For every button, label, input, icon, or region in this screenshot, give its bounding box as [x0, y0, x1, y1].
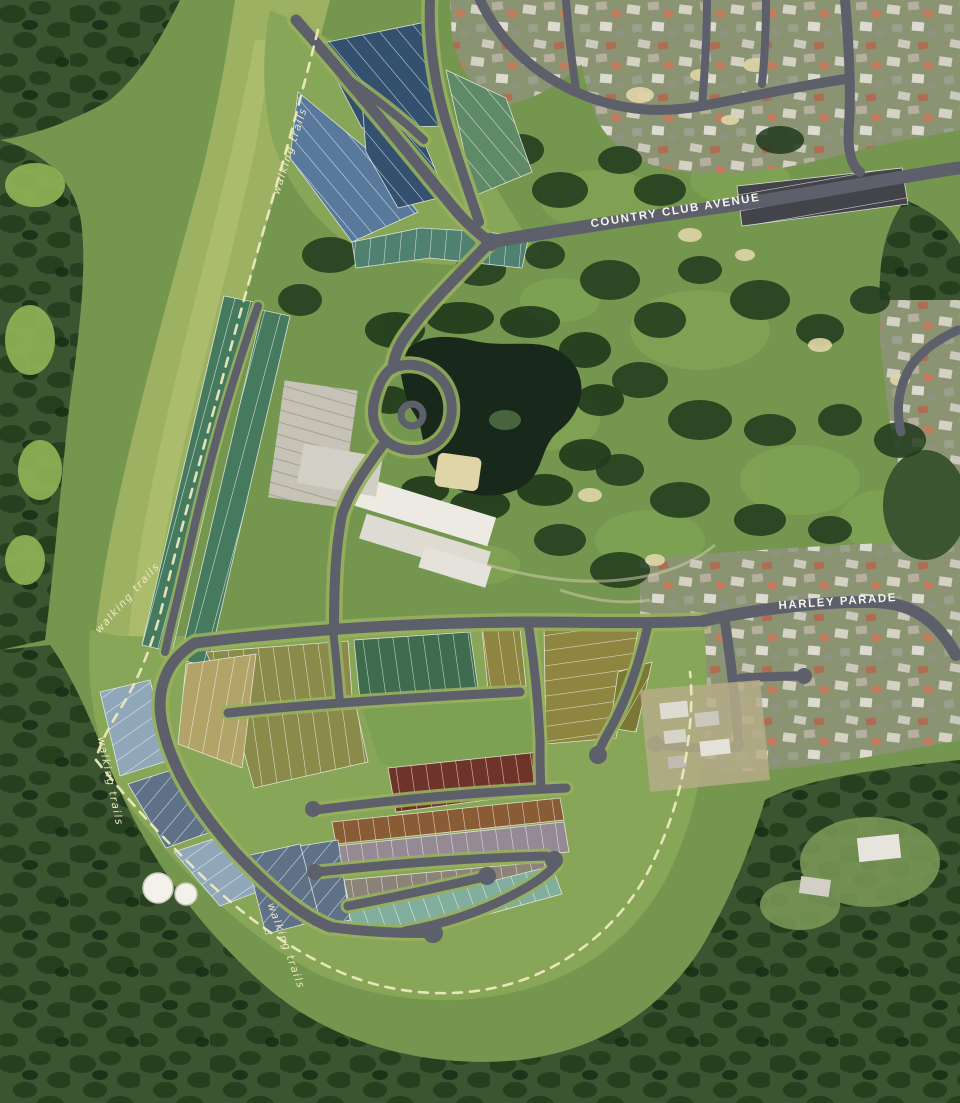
lot-block-gold-strip	[482, 628, 526, 690]
road-tr-s3	[762, 0, 766, 84]
masterplan-map: COUNTRY CLUB AVENUE HARLEY PARADE walkin…	[0, 0, 960, 1103]
sand-arena	[434, 452, 482, 492]
road-harley-spur	[741, 676, 798, 678]
lake-island	[489, 410, 521, 430]
aerial-masterplan-canvas: COUNTRY CLUB AVENUE HARLEY PARADE walkin…	[0, 0, 960, 1103]
utility-area	[640, 680, 770, 792]
cleared-pad	[640, 680, 770, 792]
